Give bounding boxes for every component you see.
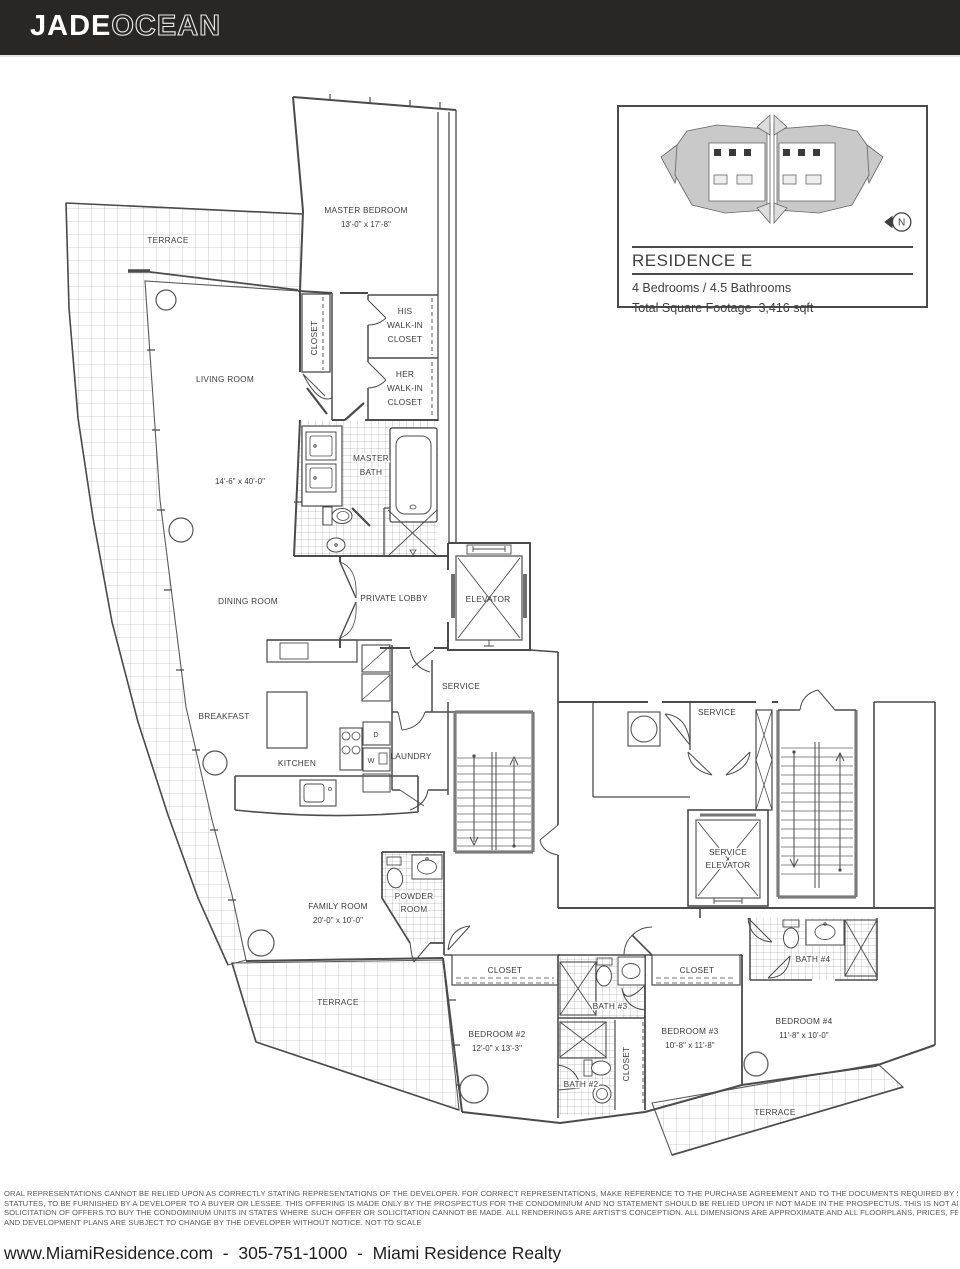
label-family-room: FAMILY ROOM (308, 901, 368, 911)
label-bath3: BATH #3 (593, 1001, 628, 1011)
label-her-closet-3: CLOSET (388, 397, 423, 407)
label-master-bath-2: BATH (360, 467, 383, 477)
staircase-main (455, 712, 533, 852)
label-washer: W (368, 756, 375, 765)
label-terrace-bl: TERRACE (317, 997, 359, 1007)
label-bedroom4-dim: 11'-8" x 10'-0" (779, 1031, 829, 1040)
label-laundry: LAUNDRY (390, 751, 431, 761)
terrace-bottom-left (232, 960, 459, 1110)
label-private-lobby: PRIVATE LOBBY (360, 593, 428, 603)
kitchen-laundry (235, 640, 455, 816)
label-bath4: BATH #4 (796, 954, 831, 964)
label-service-corridor: SERVICE (442, 681, 480, 691)
label-terrace-br: TERRACE (754, 1107, 796, 1117)
residence-title: RESIDENCE E (632, 251, 913, 271)
square-footage: Total Square Footage 3,416 sqft (632, 301, 913, 315)
label-service-elevator-2: ELEVATOR (706, 860, 751, 870)
disclaimer-line-1: ORAL REPRESENTATIONS CANNOT BE RELIED UP… (4, 1189, 958, 1199)
beds-baths: 4 Bedrooms / 4.5 Bathrooms (632, 281, 913, 295)
lobby-elevator (340, 543, 558, 672)
disclaimer-line-4: AND DEVELOPMENT PLANS ARE SUBJECT TO CHA… (4, 1218, 958, 1228)
label-bath2: BATH #2 (564, 1079, 599, 1089)
label-service-elevator-1: SERVICE (709, 847, 747, 857)
label-bedroom3-dim: 10'-8" x 11'-8" (665, 1041, 715, 1050)
label-living-room-dim: 14'-6" x 40'-0" (215, 477, 265, 486)
residence-info-box: N RESIDENCE E 4 Bedrooms / 4.5 Bathrooms… (617, 105, 928, 308)
label-dryer: D (373, 730, 378, 739)
staircase-service (778, 690, 856, 897)
label-closet-master: CLOSET (309, 321, 319, 356)
label-dining-room: DINING ROOM (218, 596, 278, 606)
disclaimer-line-2: STATUTES, TO BE FURNISHED BY A DEVELOPER… (4, 1199, 958, 1209)
label-master-bath-1: MASTER (353, 453, 389, 463)
disclaimer-line-3: SOLICITATION OF OFFERS TO BUY THE CONDOM… (4, 1208, 958, 1218)
label-bedroom3: BEDROOM #3 (662, 1026, 719, 1036)
divider-top (632, 246, 913, 248)
label-elevator: ELEVATOR (466, 594, 511, 604)
label-bedroom4: BEDROOM #4 (776, 1016, 833, 1026)
label-bedroom2-dim: 12'-0" x 13'-3" (472, 1044, 522, 1053)
north-arrow-icon: N (882, 211, 914, 233)
label-his-closet-1: HIS (398, 306, 413, 316)
label-service-right: SERVICE (698, 707, 736, 717)
north-label: N (898, 218, 905, 229)
label-closet-b2: CLOSET (488, 965, 523, 975)
label-powder-1: POWDER (395, 891, 434, 901)
divider-bottom (632, 273, 913, 275)
disclaimer: ORAL REPRESENTATIONS CANNOT BE RELIED UP… (4, 1189, 958, 1227)
label-closet-b3: CLOSET (680, 965, 715, 975)
label-living-room: LIVING ROOM (196, 374, 254, 384)
terrace-wraparound (66, 203, 303, 965)
label-terrace-top: TERRACE (147, 235, 189, 245)
label-breakfast: BREAKFAST (198, 711, 249, 721)
label-her-closet-2: WALK-IN (387, 383, 423, 393)
service-block (455, 652, 935, 1045)
label-kitchen: KITCHEN (278, 758, 316, 768)
label-his-closet-2: WALK-IN (387, 320, 423, 330)
label-closet-b3-side: CLOSET (621, 1047, 631, 1082)
label-his-closet-3: CLOSET (388, 334, 423, 344)
label-master-bedroom: MASTER BEDROOM (324, 205, 407, 215)
doors-master (303, 300, 386, 414)
label-powder-2: ROOM (401, 904, 428, 914)
service-elevator (688, 810, 768, 906)
label-master-bedroom-dim: 13'-0" x 17'-8" (341, 220, 391, 229)
footer-contact: www.MiamiResidence.com - 305-751-1000 - … (4, 1243, 561, 1264)
label-bedroom2: BEDROOM #2 (469, 1029, 526, 1039)
label-her-closet-1: HER (396, 369, 414, 379)
label-family-room-dim: 20'-0" x 10'-0" (313, 916, 363, 925)
keyplan (619, 107, 926, 237)
